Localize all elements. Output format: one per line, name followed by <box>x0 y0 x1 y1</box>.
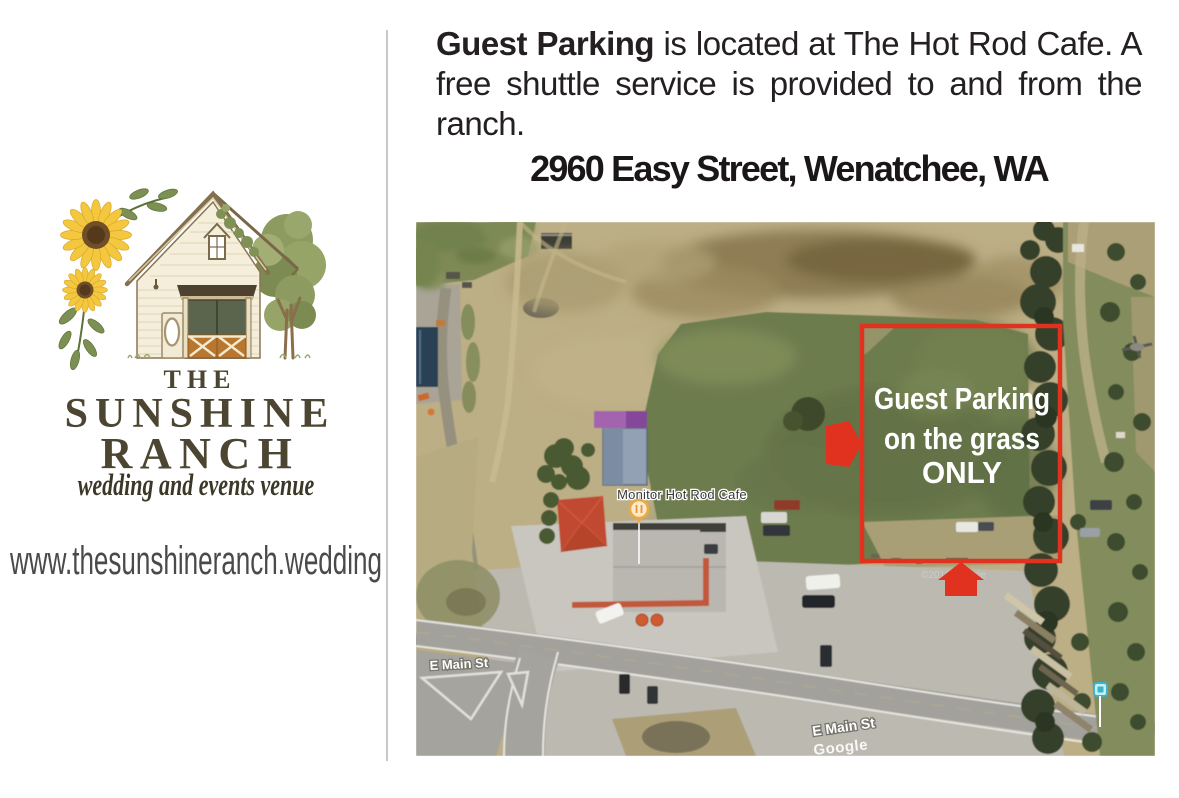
svg-text:E Main St: E Main St <box>429 655 489 673</box>
svg-text:Guest Parking: Guest Parking <box>874 381 1050 416</box>
svg-text:on the grass: on the grass <box>884 421 1040 456</box>
svg-text:ONLY: ONLY <box>922 455 1002 490</box>
